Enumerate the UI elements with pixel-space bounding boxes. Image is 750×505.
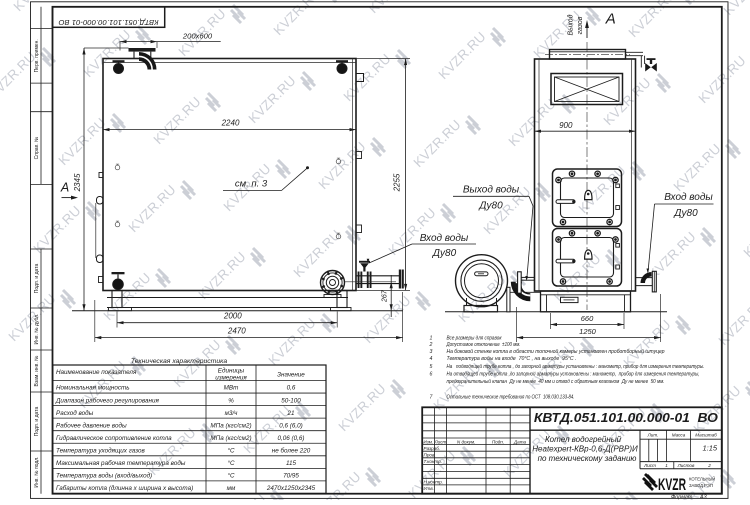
svg-text:МПа (кгс/см2): МПа (кгс/см2) bbox=[210, 435, 251, 442]
svg-text:°С: °С bbox=[227, 446, 235, 454]
svg-text:900: 900 bbox=[559, 121, 573, 130]
svg-text:газов: газов bbox=[577, 16, 584, 34]
svg-text:2470: 2470 bbox=[227, 326, 246, 335]
svg-text:На боковой стенке котла в обла: На боковой стенке котла в области топочн… bbox=[447, 348, 665, 355]
svg-text:Наименование показателя: Наименование показателя bbox=[56, 369, 137, 376]
svg-text:0,06 (0,6): 0,06 (0,6) bbox=[278, 435, 305, 442]
svg-text:Масштаб: Масштаб bbox=[695, 433, 717, 438]
svg-text:Листов: Листов bbox=[677, 463, 695, 468]
svg-text:Котел водогрейный: Котел водогрейный bbox=[545, 435, 622, 444]
svg-text:м3/ч: м3/ч bbox=[225, 410, 239, 417]
svg-text:Остальные технические требован: Остальные технические требования по ОСТ … bbox=[447, 395, 575, 401]
svg-text:Дата: Дата bbox=[513, 439, 527, 444]
svg-text:Значение: Значение bbox=[277, 372, 305, 379]
svg-text:Техническая характеристика: Техническая характеристика bbox=[131, 358, 227, 365]
svg-text:Вход воды: Вход воды bbox=[664, 192, 713, 203]
svg-text:2345: 2345 bbox=[73, 173, 82, 192]
svg-text:0,6: 0,6 bbox=[287, 385, 296, 392]
svg-text:5: 5 bbox=[430, 364, 433, 370]
svg-text:Диапазон рабочего регулировани: Диапазон рабочего регулирования bbox=[55, 396, 159, 404]
svg-text:Единицы: Единицы bbox=[218, 367, 245, 375]
svg-text:Разраб.: Разраб. bbox=[424, 446, 441, 451]
svg-text:А3: А3 bbox=[699, 495, 707, 500]
svg-text:Температура воды на входе 70°: Температура воды на входе 70°С , на выхо… bbox=[447, 356, 577, 362]
svg-text:200х600: 200х600 bbox=[182, 32, 213, 41]
svg-text:Формат: Формат bbox=[671, 495, 693, 500]
svg-text:°С: °С bbox=[227, 459, 235, 467]
svg-text:Т.контр.: Т.контр. bbox=[424, 459, 443, 464]
svg-text:Температура уходящих газов: Температура уходящих газов bbox=[56, 446, 145, 454]
svg-text:2255: 2255 bbox=[393, 173, 402, 192]
svg-text:Гидравлическое сопротивление к: Гидравлическое сопротивление котла bbox=[56, 434, 172, 442]
svg-text:°С: °С bbox=[227, 472, 235, 480]
svg-text:см. п. 3: см. п. 3 bbox=[235, 179, 268, 190]
svg-text:МПа (кгс/см2): МПа (кгс/см2) bbox=[210, 422, 251, 429]
svg-text:Справ. №: Справ. № bbox=[34, 137, 40, 160]
svg-text:Взам. инв. №: Взам. инв. № bbox=[34, 356, 40, 387]
svg-text:1: 1 bbox=[665, 463, 668, 468]
svg-text:Допустимое отклонение ±100 мм: Допустимое отклонение ±100 мм. bbox=[446, 342, 521, 348]
svg-text:2000: 2000 bbox=[223, 312, 242, 321]
svg-text:Номинальная мощность: Номинальная мощность bbox=[56, 385, 130, 392]
svg-text:1:15: 1:15 bbox=[702, 444, 717, 453]
svg-text:А: А bbox=[60, 181, 69, 195]
svg-text:Ду80: Ду80 bbox=[478, 200, 503, 211]
svg-text:мм: мм bbox=[227, 485, 236, 492]
svg-text:1250: 1250 bbox=[579, 327, 597, 336]
svg-text:2470х1250х2345: 2470х1250х2345 bbox=[266, 485, 316, 492]
svg-text:4: 4 bbox=[430, 356, 433, 362]
svg-text:115: 115 bbox=[286, 460, 297, 467]
svg-text:660: 660 bbox=[581, 314, 594, 323]
svg-text:267: 267 bbox=[382, 289, 389, 303]
svg-text:1: 1 bbox=[430, 335, 433, 341]
svg-text:Вход воды: Вход воды bbox=[420, 233, 469, 244]
svg-text:не более 220: не более 220 bbox=[272, 446, 311, 454]
svg-text:Heatexpert-КВр-0,6-Д(РВР)И: Heatexpert-КВр-0,6-Д(РВР)И bbox=[532, 444, 638, 453]
svg-text:Подп. и дата: Подп. и дата bbox=[34, 264, 40, 294]
svg-text:Пров.: Пров. bbox=[424, 453, 436, 458]
svg-text:3: 3 bbox=[430, 349, 433, 355]
svg-text:Подп. и дата: Подп. и дата bbox=[34, 407, 40, 437]
svg-text:Инв. № подл.: Инв. № подл. bbox=[34, 456, 40, 487]
svg-text:КВТД.051.101.00.000-01 ВО: КВТД.051.101.00.000-01 ВО bbox=[59, 18, 159, 27]
svg-text:Расход воды: Расход воды bbox=[56, 409, 94, 417]
svg-text:ЗАВОД РЭП: ЗАВОД РЭП bbox=[689, 483, 713, 488]
svg-text:2240: 2240 bbox=[221, 118, 240, 127]
svg-text:21: 21 bbox=[286, 410, 294, 417]
svg-text:6: 6 bbox=[430, 372, 433, 378]
svg-text:КОТЕЛЬНЫЙ: КОТЕЛЬНЫЙ bbox=[689, 476, 715, 481]
svg-text:Лит.: Лит. bbox=[647, 433, 659, 438]
svg-text:Лист: Лист bbox=[643, 463, 656, 468]
svg-text:2: 2 bbox=[429, 342, 433, 348]
svg-text:50-100: 50-100 bbox=[281, 397, 301, 404]
svg-text:Изм.: Изм. bbox=[423, 439, 433, 444]
svg-text:KVZR: KVZR bbox=[658, 476, 686, 494]
svg-text:Лист: Лист bbox=[433, 439, 446, 444]
svg-text:Инв. № дубл.: Инв. № дубл. bbox=[34, 314, 40, 345]
svg-text:Выход: Выход bbox=[567, 14, 575, 35]
svg-text:измерения: измерения bbox=[215, 374, 247, 381]
svg-text:Рабочее давление воды: Рабочее давление воды bbox=[56, 421, 127, 429]
svg-text:предохранительный клапан Ду н: предохранительный клапан Ду не менее 40 … bbox=[447, 378, 665, 385]
svg-text:Габариты котла (длинна х ширин: Габариты котла (длинна х ширина х высота… bbox=[56, 484, 193, 492]
svg-text:А: А bbox=[605, 11, 616, 28]
svg-text:Температура воды (вход/выход): Температура воды (вход/выход) bbox=[56, 472, 152, 480]
svg-text:Подп.: Подп. bbox=[492, 439, 504, 444]
svg-text:Ду80: Ду80 bbox=[432, 248, 457, 259]
svg-text:0,6 (6,0): 0,6 (6,0) bbox=[279, 422, 302, 429]
svg-text:по техническому заданию: по техническому заданию bbox=[538, 454, 637, 463]
svg-text:КВТД.051.101.00.000-01 ВО: КВТД.051.101.00.000-01 ВО bbox=[534, 410, 718, 425]
svg-text:%: % bbox=[228, 397, 234, 404]
svg-text:На отводящей трубе котла ,до з: На отводящей трубе котла ,до запорной ар… bbox=[447, 371, 700, 378]
svg-text:МВт: МВт bbox=[224, 385, 239, 392]
svg-text:Выход воды: Выход воды bbox=[463, 185, 520, 196]
svg-text:Максимальная рабочая температу: Максимальная рабочая температура воды bbox=[56, 459, 186, 467]
svg-text:Н.контр.: Н.контр. bbox=[424, 480, 443, 485]
svg-text:Все размеры для справок: Все размеры для справок bbox=[447, 335, 502, 341]
svg-text:70/95: 70/95 bbox=[283, 473, 299, 480]
svg-text:На подводящей трубе котла ,: На подводящей трубе котла , до запорной … bbox=[447, 363, 705, 370]
svg-text:Перв. примен.: Перв. примен. bbox=[34, 39, 40, 72]
svg-text:N докум.: N докум. bbox=[457, 439, 476, 444]
svg-text:2: 2 bbox=[707, 463, 711, 468]
svg-text:Масса: Масса bbox=[672, 433, 686, 438]
svg-text:Утв.: Утв. bbox=[424, 486, 434, 491]
svg-text:Ду80: Ду80 bbox=[673, 208, 698, 219]
